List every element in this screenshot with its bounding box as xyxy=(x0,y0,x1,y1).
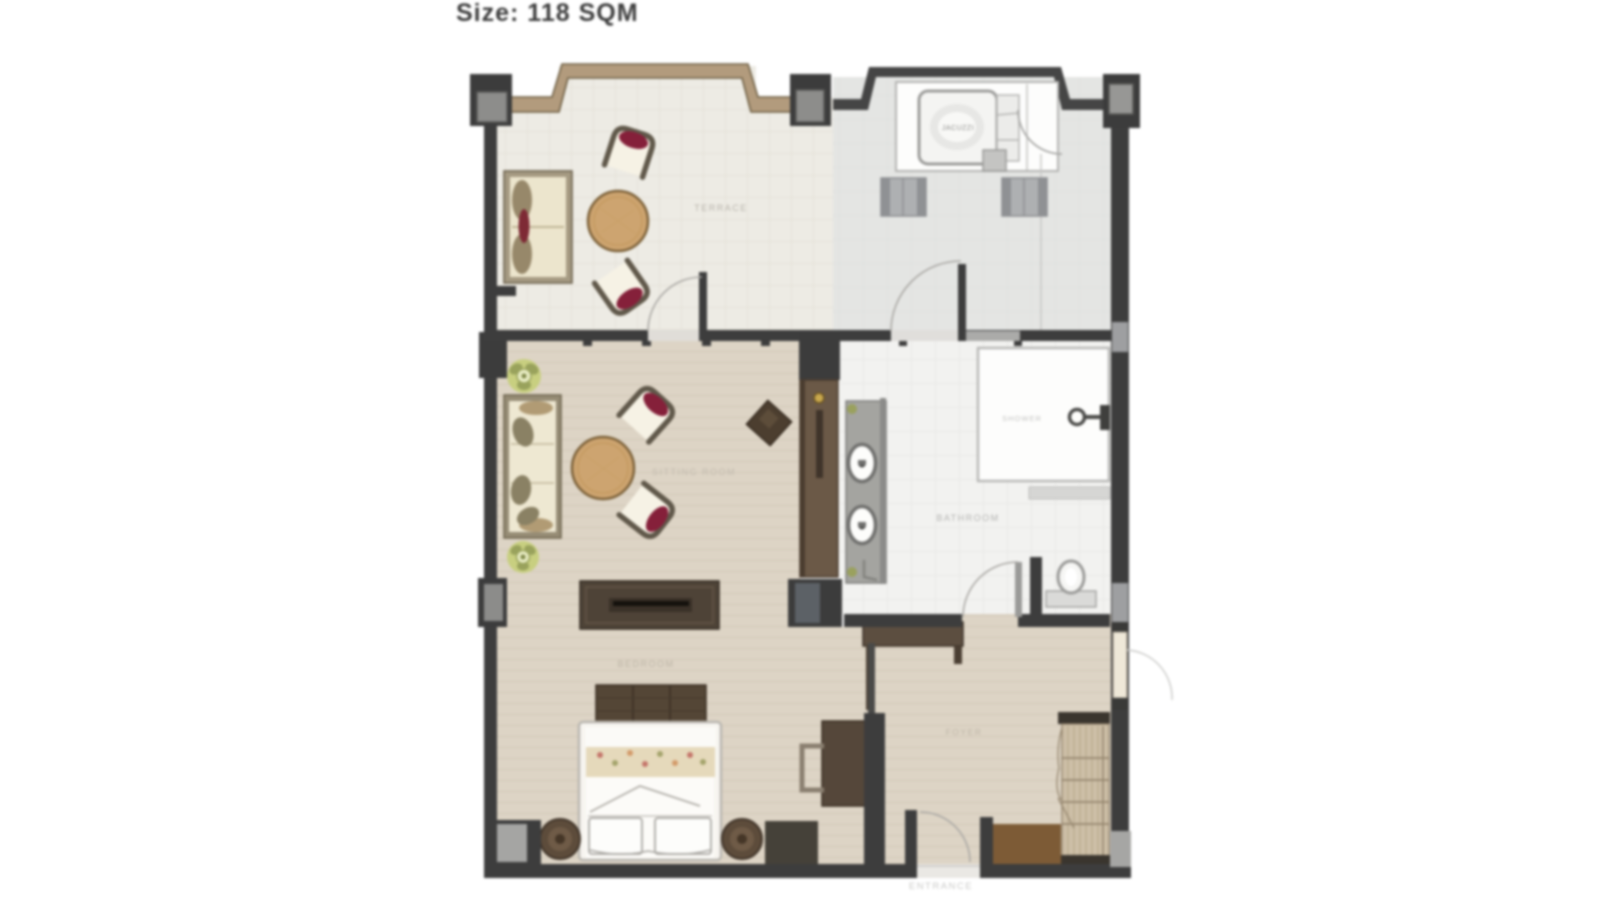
svg-text:BEDROOM: BEDROOM xyxy=(617,659,674,669)
svg-text:Size: 118 SQM: Size: 118 SQM xyxy=(456,0,639,27)
svg-text:ENTRANCE: ENTRANCE xyxy=(909,881,973,892)
svg-text:TERRACE: TERRACE xyxy=(694,203,748,213)
svg-text:FOYER: FOYER xyxy=(946,727,983,737)
svg-text:BATHROOM: BATHROOM xyxy=(936,513,999,523)
svg-text:JACUZZI: JACUZZI xyxy=(942,125,974,132)
svg-text:SITTING ROOM: SITTING ROOM xyxy=(652,467,736,477)
svg-text:SHOWER: SHOWER xyxy=(1002,414,1042,423)
